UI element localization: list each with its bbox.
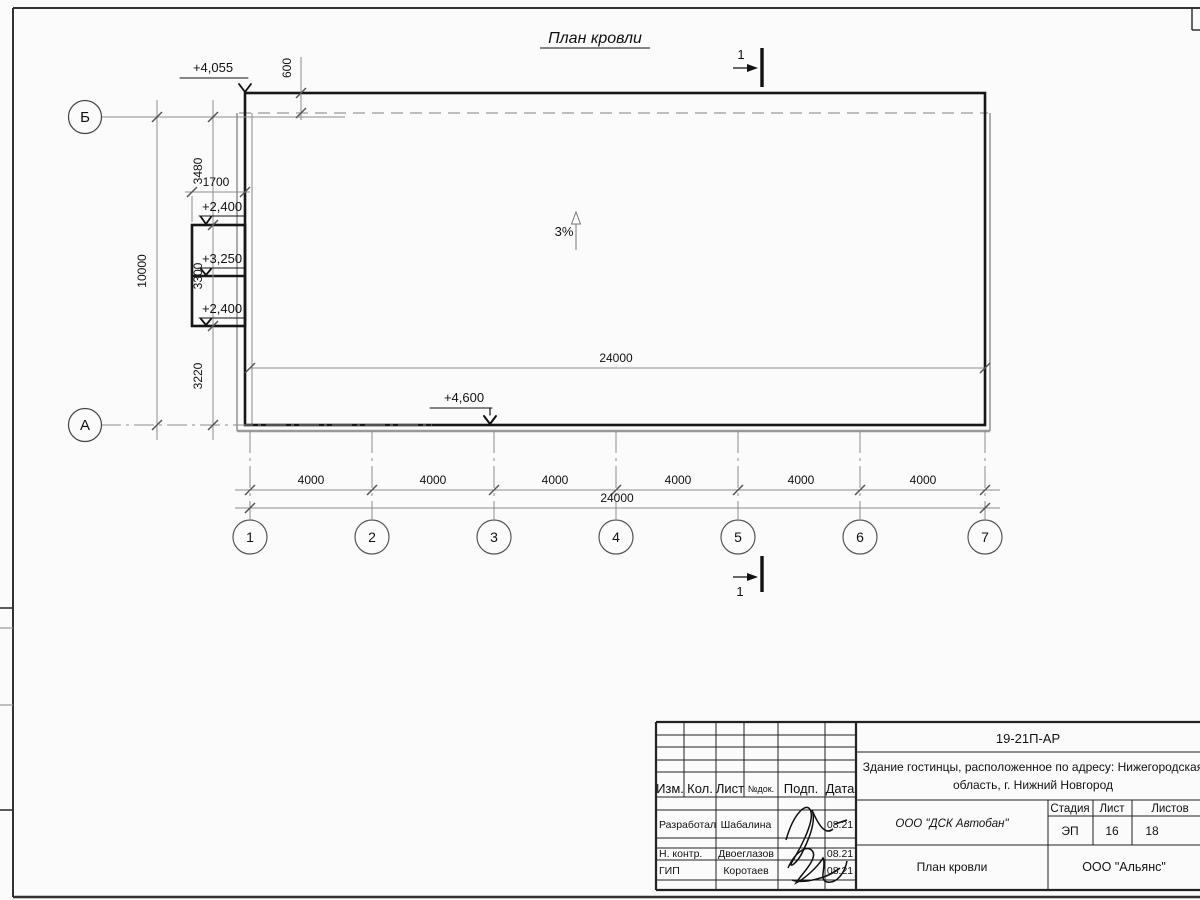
section-mark-top: 1 xyxy=(733,47,762,87)
slope-arrow-icon xyxy=(572,212,581,224)
grid-label-3: 3 xyxy=(490,529,498,545)
dim-span: 4000 xyxy=(665,473,692,487)
elevation-roof-bottom: +4,600 xyxy=(444,390,484,405)
inner-dimension: 24000 xyxy=(245,351,990,373)
tb-role: ГИП xyxy=(659,865,680,877)
dim-canopy-width: 1700 xyxy=(203,175,230,189)
elevation-canopy-bottom: +2,400 xyxy=(202,301,242,316)
tb-col-list: Лист xyxy=(716,781,744,796)
grid-label-7: 7 xyxy=(981,529,989,545)
section-label: 1 xyxy=(737,47,744,62)
dim-span: 4000 xyxy=(542,473,569,487)
tb-company: ООО "Альянс" xyxy=(1082,860,1166,874)
axis-label-B: Б xyxy=(80,109,90,126)
tb-col-data: Дата xyxy=(826,781,856,796)
grid-lines xyxy=(250,431,985,519)
axis-label-A: А xyxy=(80,417,90,434)
tb-col-podp: Подп. xyxy=(784,781,819,796)
tb-project-line2: область, г. Нижний Новгород xyxy=(953,778,1113,792)
bottom-dimensions: 4000 4000 4000 4000 4000 4000 24000 xyxy=(235,473,1000,513)
tb-col-ndok: №док. xyxy=(748,784,774,794)
tb-col-kol: Кол. xyxy=(687,781,713,796)
tb-stage-label: Стадия xyxy=(1050,803,1089,815)
axes-horizontal: Б А xyxy=(69,101,433,442)
dim-span: 4000 xyxy=(788,473,815,487)
section-arrow-icon xyxy=(747,573,758,581)
dim-bottom-total: 24000 xyxy=(600,491,634,505)
dim-left-segment: 3220 xyxy=(191,362,205,389)
dim-left-total: 10000 xyxy=(135,254,149,288)
grid-bubbles: 1 2 3 4 5 6 7 xyxy=(233,520,1002,554)
tb-role: Н. контр. xyxy=(659,848,702,860)
grid-label-1: 1 xyxy=(246,529,254,545)
section-label: 1 xyxy=(736,584,743,599)
grid-label-2: 2 xyxy=(368,529,376,545)
grid-label-4: 4 xyxy=(612,529,620,545)
dim-overhang: 600 xyxy=(280,58,294,78)
tb-name: Шабалина xyxy=(721,819,772,831)
tb-drawing-name: План кровли xyxy=(917,860,988,874)
section-mark-bottom: 1 xyxy=(733,556,762,599)
elevation-canopy-mid: +3,250 xyxy=(202,251,242,266)
tb-col-izm: Изм. xyxy=(656,781,684,796)
elevation-roof-corner: +4,055 xyxy=(193,60,233,75)
dim-span: 4000 xyxy=(298,473,325,487)
tb-stage-value: ЭП xyxy=(1061,824,1078,838)
slope-indicator: 3% xyxy=(555,212,581,250)
tb-sheet-value: 16 xyxy=(1105,824,1119,838)
tb-name: Коротаев xyxy=(723,865,769,877)
tb-doc-number: 19-21П-АР xyxy=(996,731,1060,746)
page-title: План кровли xyxy=(548,30,642,47)
tb-date: 08.21 xyxy=(827,848,853,860)
overhang-dimension: 600 xyxy=(280,57,306,120)
tb-sheets-label: Листов xyxy=(1151,803,1188,815)
tb-role: Разработал xyxy=(659,819,716,831)
elevation-canopy-top: +2,400 xyxy=(202,199,242,214)
roof-plan-drawing: План кровли 1 1 Б А xyxy=(0,0,1200,900)
grid-label-5: 5 xyxy=(734,529,742,545)
tb-project-line1: Здание гостинцы, расположенное по адресу… xyxy=(863,760,1200,774)
tb-date: 08.21 xyxy=(827,819,853,831)
roof-outline xyxy=(245,93,985,425)
grid-label-6: 6 xyxy=(856,529,864,545)
elevation-marks: +4,055 +2,400 +3,250 +2,400 +4,600 xyxy=(180,60,496,424)
building-wall-outline xyxy=(237,113,990,431)
drawing-title: План кровли xyxy=(540,30,650,48)
left-dimensions: 10000 3480 3300 3220 xyxy=(135,100,218,440)
slope-label: 3% xyxy=(555,224,574,239)
dim-left-segment: 3300 xyxy=(191,262,205,289)
title-block: Изм. Кол. Лист №док. Подп. Дата Разработ… xyxy=(656,722,1200,890)
tb-name: Двоеглазов xyxy=(718,848,774,860)
tb-sheet-label: Лист xyxy=(1100,803,1126,815)
tb-organization: ООО "ДСК Автобан" xyxy=(895,818,1009,830)
dim-span: 4000 xyxy=(910,473,937,487)
tb-sheets-value: 18 xyxy=(1145,824,1159,838)
section-arrow-icon xyxy=(747,64,758,72)
dim-span: 4000 xyxy=(420,473,447,487)
dim-inner-total: 24000 xyxy=(599,351,633,365)
